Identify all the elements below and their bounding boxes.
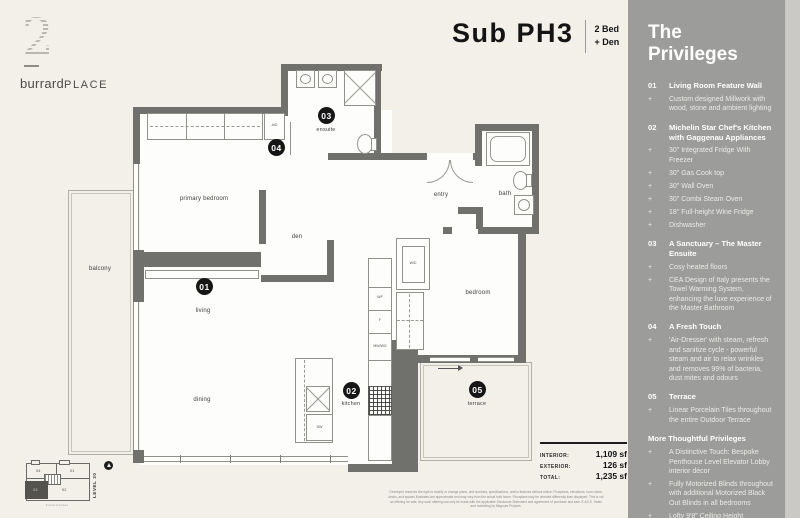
room-label-living: living [178, 308, 228, 316]
privilege-item: 30" Integrated Fridge With Freezer [669, 146, 773, 165]
wall-segment [532, 124, 539, 234]
feature-wall [140, 252, 261, 267]
wall-segment [392, 340, 418, 472]
wall-segment [475, 124, 539, 131]
section-number: 04 [648, 322, 669, 332]
privilege-item: A Distinctive Touch: Bespoke Penthouse L… [669, 448, 773, 476]
brand-name-upper: PLACE [64, 79, 108, 91]
marker-03: 03 [318, 107, 335, 124]
window [140, 456, 348, 462]
shower-icon [344, 70, 376, 106]
plus-bullet: + [648, 208, 669, 217]
legal-disclaimer: Developer reserves the right to modify o… [388, 490, 604, 509]
appliance-cell [368, 258, 392, 288]
brochure-page: 2 burrardPLACE Sub PH3 2 Bed + Den [0, 0, 800, 518]
section-items: +Cosy heated floors+CEA Design of Italy … [648, 263, 773, 314]
toilet-tank-icon [371, 138, 377, 151]
section-items: +Linear Porcelain Tiles throughout the e… [648, 406, 773, 425]
wall-oven-label: MW/WO [368, 345, 392, 349]
door-opening [452, 227, 478, 234]
north-arrow-icon [104, 461, 113, 470]
section-items: +Custom designed Millwork with wood, sto… [648, 95, 773, 114]
privilege-item: Linear Porcelain Tiles throughout the en… [669, 406, 773, 425]
marker-01: 01 [196, 278, 213, 295]
section-number: 03 [648, 239, 669, 259]
stat-label: TOTAL: [540, 475, 560, 481]
terrace-door-arrow [438, 368, 458, 369]
logo-numeral: 2 [20, 12, 56, 62]
wall-segment [475, 124, 482, 166]
room-label-ensuite: ensuite [301, 127, 351, 134]
plus-bullet: + [648, 406, 669, 425]
privilege-section-more: More Thoughtful Privileges +A Distinctiv… [648, 434, 773, 518]
plus-bullet: + [648, 195, 669, 204]
plus-bullet: + [648, 182, 669, 191]
privilege-item: Lofty 9'8" Ceiling Height [669, 512, 743, 518]
room-label-balcony: balcony [75, 266, 125, 274]
section-heading: A Fresh Touch [669, 322, 721, 332]
plus-bullet: + [648, 448, 669, 476]
plus-bullet: + [648, 263, 669, 272]
section-heading: Terrace [669, 392, 696, 402]
keyplan-unit-02: 02 [62, 488, 66, 492]
keyplan-unit-03: 03 [33, 488, 37, 492]
bathtub-inner [490, 136, 526, 162]
wardrobe-rod [150, 126, 260, 127]
stats-rule [540, 442, 627, 444]
keyplan-level-label: LEVEL 30 [92, 464, 97, 498]
plan-name: Sub PH3 [452, 20, 574, 47]
toilet-tank-icon [526, 174, 532, 187]
sink-basin-icon [322, 74, 333, 84]
stat-label: INTERIOR: [540, 453, 569, 459]
room-label-bath: bath [483, 191, 527, 199]
room-label-primary-bedroom: primary bedroom [174, 196, 234, 204]
privilege-section-03: 03 A Sanctuary – The Master Ensuite +Cos… [648, 239, 773, 313]
privilege-item: 30" Wall Oven [669, 182, 713, 191]
plus-bullet: + [648, 221, 669, 230]
ensuite-door-leaf [290, 122, 291, 155]
wine-fridge-label: WF [368, 296, 392, 300]
wardrobe-divider [186, 114, 187, 139]
washer-dryer-label: W/D [399, 262, 427, 266]
plus-bullet: + [648, 336, 669, 383]
privilege-item: Cosy heated floors [669, 263, 727, 272]
window-mullion [230, 455, 231, 463]
stat-value: 1,235 sf [596, 471, 627, 481]
room-label-dining: dining [177, 397, 227, 405]
wall-segment [518, 230, 526, 362]
wall-segment [133, 107, 140, 164]
keyplan-street-label: burrard street [24, 503, 90, 507]
room-label-terrace: terrace [452, 401, 502, 408]
marker-05: 05 [469, 381, 486, 398]
brand-name-lower: burrard [20, 76, 64, 91]
window-mullion [280, 455, 281, 463]
wall-segment [261, 275, 334, 282]
room-label-entry: entry [416, 192, 466, 200]
dishwasher-label: DW [306, 426, 333, 430]
section-items: +30" Integrated Fridge With Freezer+30" … [648, 146, 773, 230]
privilege-item: 30" Combi Steam Oven [669, 195, 742, 204]
section-heading: Living Room Feature Wall [669, 81, 762, 91]
island-counter-line [304, 360, 305, 441]
privilege-section-04: 04 A Fresh Touch +'Air-Dresser' with ste… [648, 322, 773, 383]
privilege-section-05: 05 Terrace +Linear Porcelain Tiles throu… [648, 392, 773, 425]
terrace-outline [420, 362, 532, 461]
section-items: +'Air-Dresser' with steam, refresh and s… [648, 336, 773, 383]
fridge-label: F [368, 319, 392, 323]
privileges-sidebar: The Privileges 01 Living Room Feature Wa… [628, 0, 785, 518]
sidebar-edge-strip [785, 0, 800, 518]
plus-bullet: + [648, 169, 669, 178]
stat-value: 126 sf [603, 460, 627, 470]
wall-segment [259, 190, 266, 244]
wall-segment [328, 153, 381, 160]
wardrobe [147, 113, 263, 140]
keyplan-unit-04: 04 [36, 469, 40, 473]
plan-type-den: + Den [595, 36, 620, 49]
room-fill [140, 110, 392, 465]
brand-name: burrardPLACE [20, 76, 108, 91]
plus-bullet: + [648, 95, 669, 114]
window [133, 302, 139, 450]
section-heading: More Thoughtful Privileges [648, 434, 746, 444]
privilege-item: 18" Full-height Wine Fridge [669, 208, 754, 217]
section-heading: Michelin Star Chef's Kitchen with Gaggen… [669, 123, 773, 143]
privilege-item: Custom designed Millwork with wood, ston… [669, 95, 773, 114]
keyplan: 04 01 02 03 LEVEL 30 burrard street [24, 455, 124, 513]
closet-rod [409, 294, 410, 348]
section-number: 02 [648, 123, 669, 143]
stat-row-interior: INTERIOR: 1,109 sf [540, 449, 627, 459]
area-stats: INTERIOR: 1,109 sf EXTERIOR: 126 sf TOTA… [540, 442, 627, 482]
window [430, 357, 470, 362]
privilege-item: Dishwasher [669, 221, 706, 230]
room-label-bedroom: bedroom [453, 290, 503, 298]
window-mullion [330, 455, 331, 463]
stat-row-exterior: EXTERIOR: 126 sf [540, 460, 627, 470]
wardrobe-divider [224, 114, 225, 139]
balcony-outline [68, 190, 134, 455]
privilege-section-02: 02 Michelin Star Chef's Kitchen with Gag… [648, 123, 773, 230]
bathtub-icon [486, 132, 530, 166]
counter-cell [368, 415, 392, 461]
room-label-kitchen: kitchen [326, 401, 376, 408]
closet-divider [397, 320, 423, 321]
privilege-item: 30" Gas Cook top [669, 169, 724, 178]
privilege-section-01: 01 Living Room Feature Wall +Custom desi… [648, 81, 773, 114]
stat-value: 1,109 sf [596, 449, 627, 459]
section-number: 05 [648, 392, 669, 402]
door-opening [427, 153, 473, 160]
plan-type: 2 Bed + Den [595, 20, 620, 49]
plus-bullet: + [648, 512, 669, 518]
wall-segment [133, 450, 144, 463]
plus-bullet: + [648, 276, 669, 314]
air-dresser-label: A/D [264, 124, 285, 128]
marker-02: 02 [343, 382, 360, 399]
keyplan-bump [31, 460, 40, 465]
terrace-door-arrowhead [458, 365, 463, 371]
room-label-den: den [272, 234, 322, 242]
header-divider [585, 20, 586, 53]
sink-basin-icon [518, 199, 530, 211]
marker-04: 04 [268, 139, 285, 156]
bedroom-closet [396, 292, 424, 350]
brand-logo: 2 burrardPLACE [20, 12, 108, 91]
plus-bullet: + [648, 480, 669, 508]
window [133, 164, 139, 250]
plan-header: Sub PH3 2 Bed + Den [452, 20, 619, 53]
privilege-item: CEA Design of Italy presents the Towel W… [669, 276, 773, 314]
wall-segment [348, 464, 418, 472]
window-mullion [180, 455, 181, 463]
plan-type-beds: 2 Bed [595, 23, 620, 36]
plus-bullet: + [648, 146, 669, 165]
privilege-item: 'Air-Dresser' with steam, refresh and sa… [669, 336, 773, 383]
section-items: +A Distinctive Touch: Bespoke Penthouse … [648, 448, 773, 518]
wall-segment [476, 207, 483, 229]
stat-label: EXTERIOR: [540, 464, 571, 470]
section-heading: A Sanctuary – The Master Ensuite [669, 239, 773, 259]
keyplan-bump [59, 460, 70, 465]
window [478, 357, 514, 362]
section-number: 01 [648, 81, 669, 91]
keyplan-unit-01: 01 [70, 469, 74, 473]
stat-row-total: TOTAL: 1,235 sf [540, 471, 627, 481]
sidebar-title: The Privileges [648, 22, 773, 66]
counter-cell [368, 360, 392, 387]
sink-basin-icon [300, 74, 311, 84]
privilege-item: Fully Motorized Blinds throughout with a… [669, 480, 773, 508]
